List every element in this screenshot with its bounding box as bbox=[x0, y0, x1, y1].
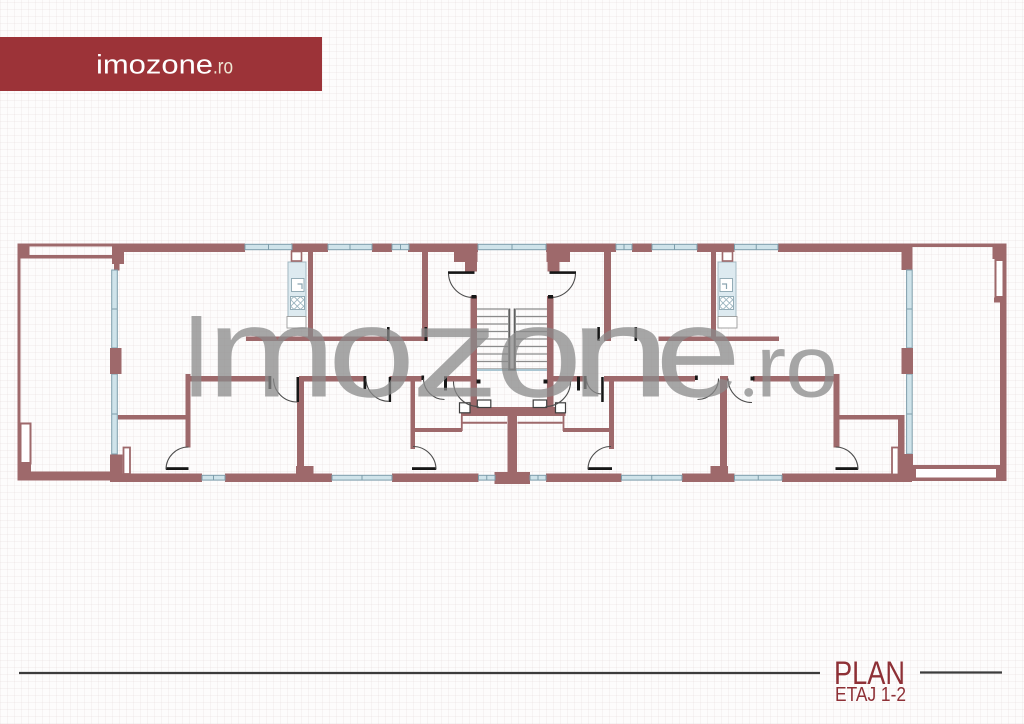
svg-text:.ro: .ro bbox=[213, 56, 233, 79]
svg-text:imozone: imozone bbox=[96, 50, 213, 80]
